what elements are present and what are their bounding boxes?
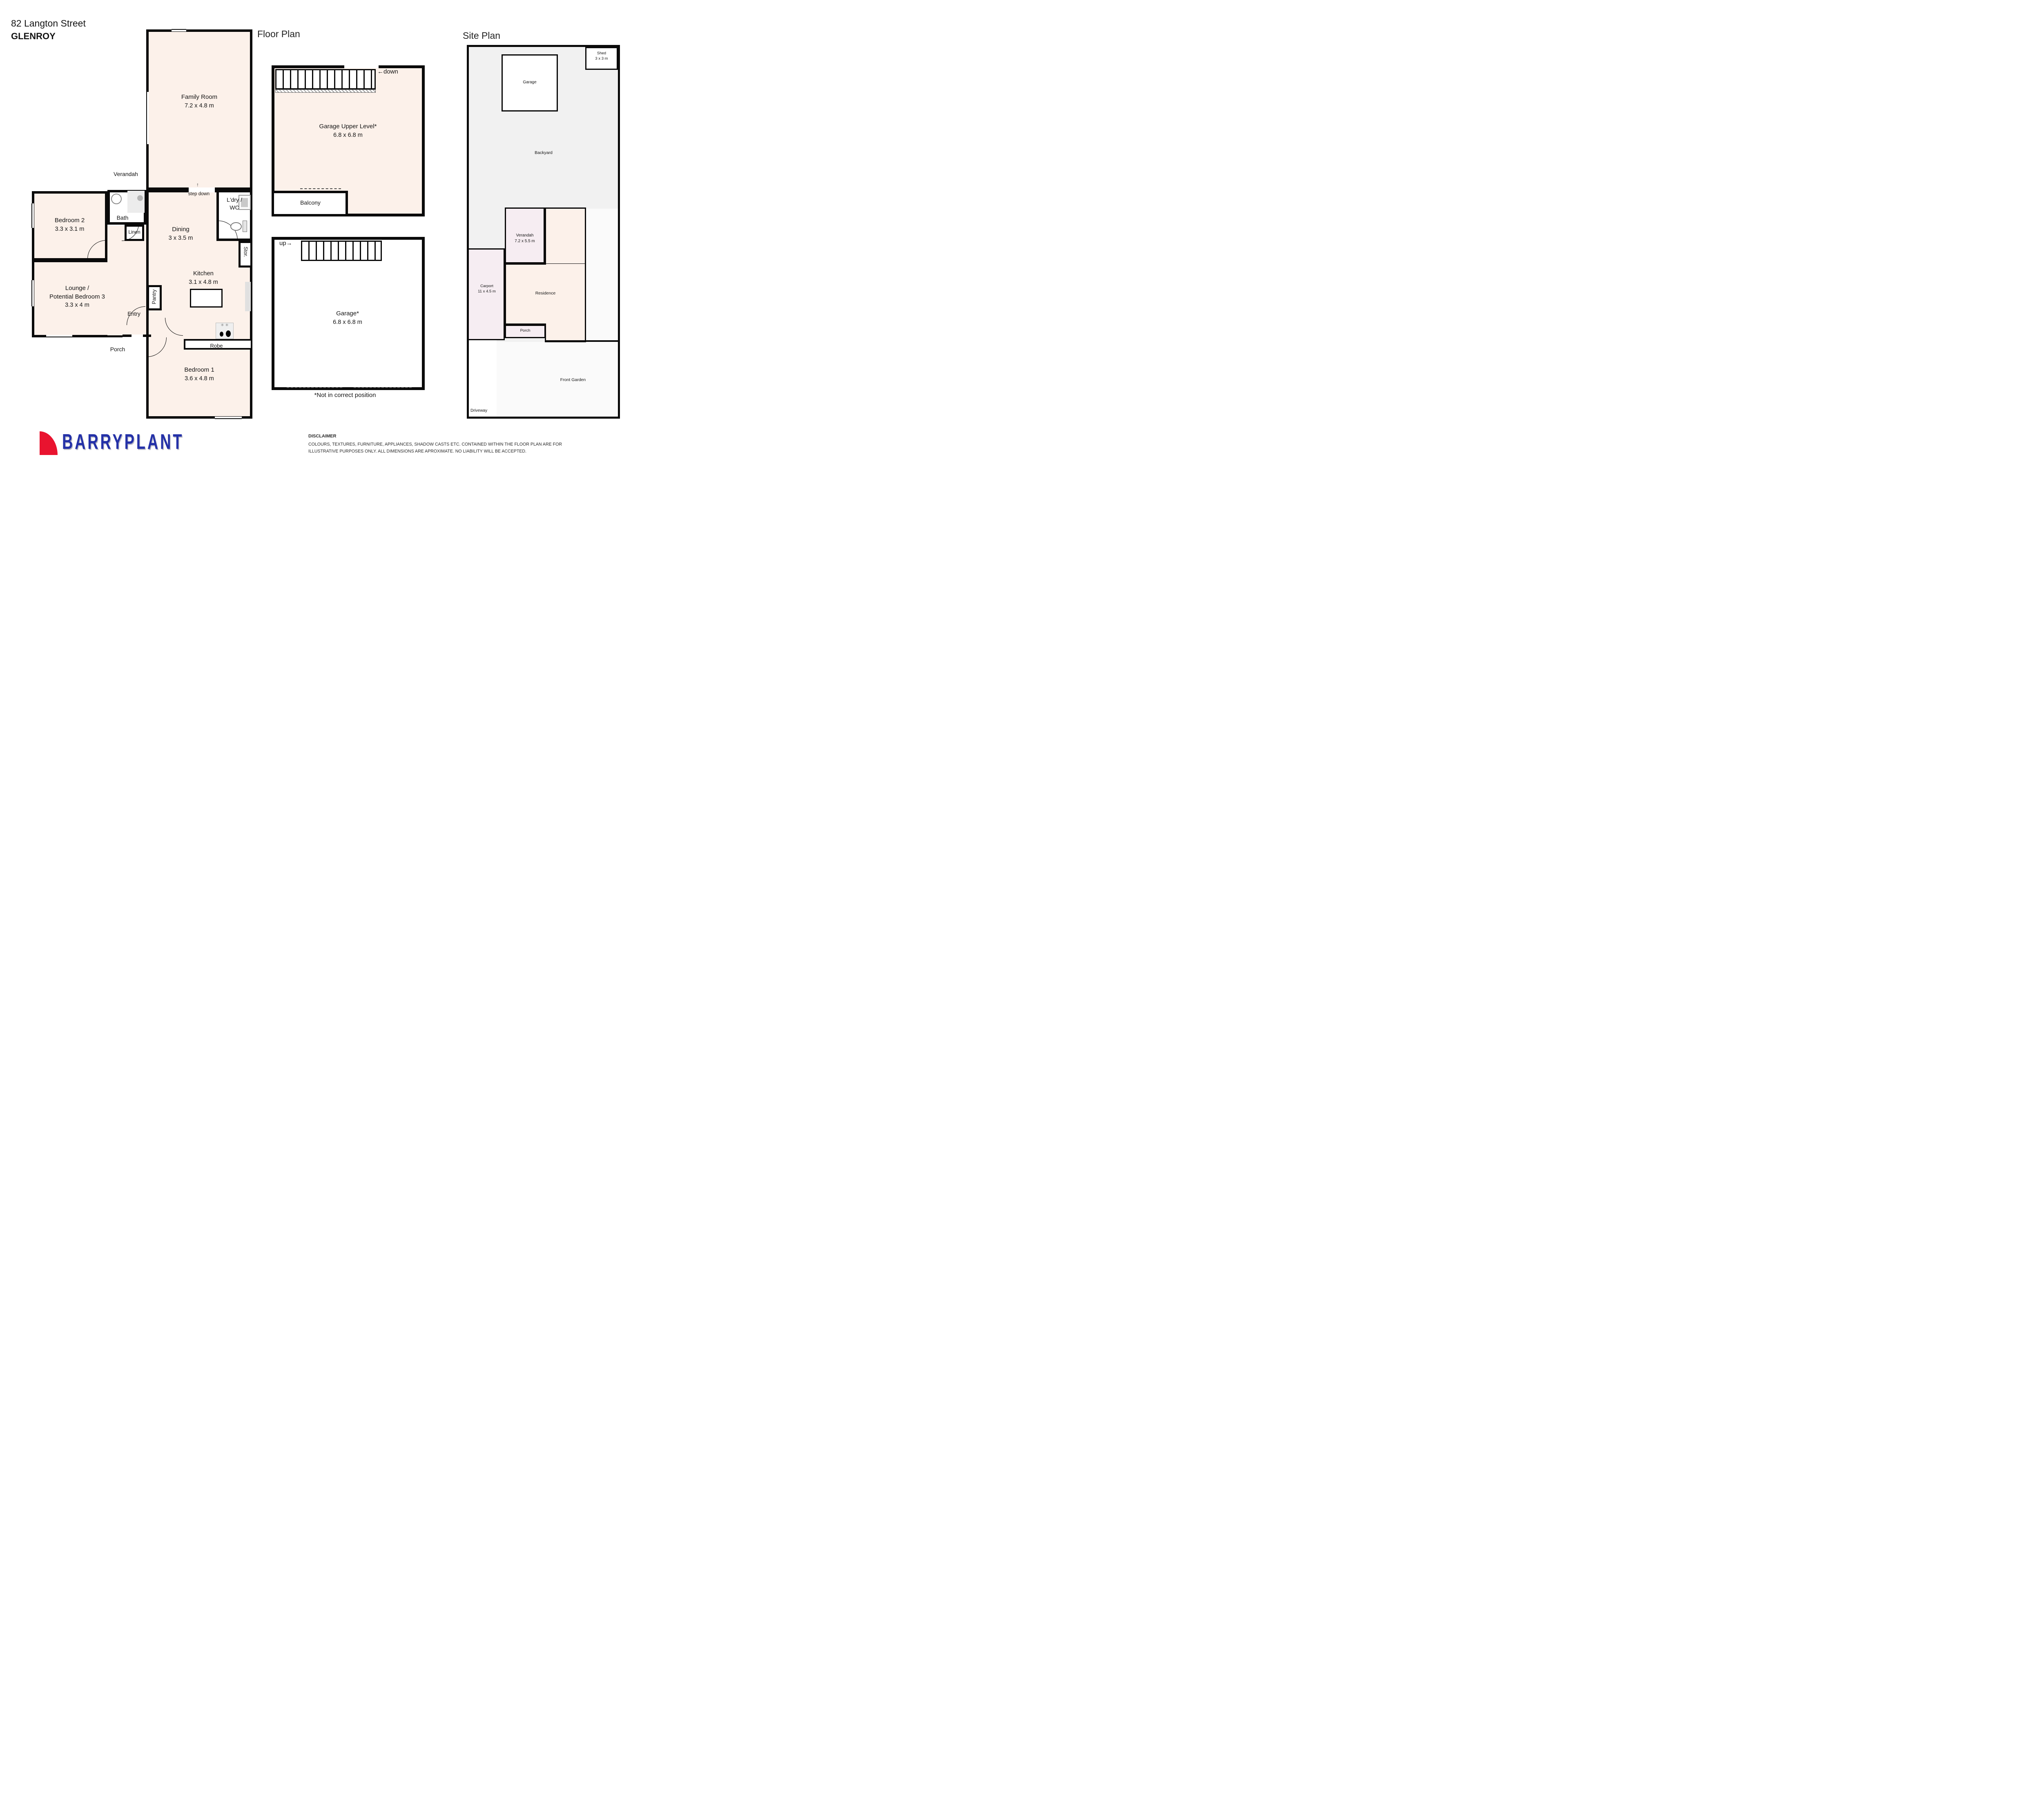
garage-upper-label: Garage Upper Level* 6.8 x 6.8 m (303, 123, 393, 139)
stairs-down-label: ←down (377, 68, 408, 76)
family-room-label: Family Room 7.2 x 4.8 m (154, 93, 244, 110)
site-shed-label: Shed 3 x 3 m (585, 51, 618, 62)
site-plan: Shed 3 x 3 m Garage Backyard Verandah 7.… (467, 45, 620, 419)
step-down-label: step down (183, 191, 215, 198)
stairs-down (275, 69, 376, 89)
site-side-yard (586, 209, 618, 341)
window (30, 203, 34, 228)
disclaimer-title: DISCLAIMER (308, 434, 336, 439)
bedroom-1-label: Bedroom 1 3.6 x 4.8 m (163, 366, 236, 383)
site-carport-label: Carport 11 x 4.5 m (469, 284, 505, 294)
bath-label: Bath (110, 214, 135, 222)
porch-label: Porch (105, 346, 130, 353)
garage-upper-wall-opening (344, 63, 379, 68)
site-garage-label: Garage (502, 80, 558, 85)
pantry-label: Pantry (151, 286, 158, 308)
shower-drain-icon (137, 195, 143, 201)
bedroom-2-label: Bedroom 2 3.3 x 3.1 m (38, 216, 101, 233)
site-driveway-label: Driveway (470, 408, 496, 414)
balcony-label: Balcony (286, 199, 335, 207)
barry-plant-logo-text: BARRYPLANT (62, 430, 184, 454)
robe-label: Robe (182, 342, 251, 350)
floorplan-document: 82 Langton Street GLENROY Floor Plan Sit… (0, 0, 631, 468)
site-verandah-label: Verandah 7.2 x 5.5 m (505, 233, 545, 244)
site-porch-label: Porch (505, 328, 546, 334)
window (46, 335, 72, 339)
window (172, 27, 186, 31)
entry-label: Entry (123, 310, 145, 318)
address-line2: GLENROY (11, 31, 56, 42)
lounge-label: Lounge / Potential Bedroom 3 3.3 x 4 m (34, 284, 120, 309)
toilet-tank-icon (243, 221, 247, 232)
garage-door-dashed (354, 387, 412, 388)
laundry-wc-label: L'dry / WC (217, 196, 252, 212)
balcony-dashed-line (300, 188, 341, 189)
stove-burner-icon (226, 330, 231, 337)
stove-burner-icon (220, 332, 223, 337)
kitchen-bench-icon (245, 282, 251, 311)
stairs-up (301, 241, 382, 261)
disclaimer-body: COLOURS, TEXTURES, FURNITURE, APPLIANCES… (308, 441, 578, 455)
stairs-up-label: up→ (279, 239, 301, 248)
stairs-hatch (275, 89, 376, 93)
site-backyard-label: Backyard (521, 150, 566, 156)
step-arrow: ↑ (194, 181, 201, 188)
toilet-icon (230, 222, 242, 231)
site-front-wall (545, 340, 619, 342)
residence-join-patch (546, 264, 585, 341)
site-plan-title: Site Plan (463, 30, 500, 41)
site-front-garden-label: Front Garden (548, 377, 597, 383)
floor-plan-title: Floor Plan (257, 29, 300, 40)
address-line1: 82 Langton Street (11, 18, 86, 29)
window (215, 417, 242, 421)
entry-door-opening (132, 335, 143, 337)
kitchen-island (190, 289, 223, 308)
kitchen-label: Kitchen 3.1 x 4.8 m (171, 270, 236, 286)
position-note: *Not in correct position (282, 391, 408, 400)
stove-icon: ✳ ✳ (216, 323, 234, 339)
garage-label: Garage* 6.8 x 6.8 m (309, 310, 386, 326)
garage-door-dashed (287, 387, 342, 388)
sink-icon (111, 194, 122, 204)
linen-label: Linen (125, 229, 143, 236)
barry-plant-logo-icon (40, 431, 58, 455)
window (145, 92, 149, 144)
storage-label: Stor. (242, 243, 249, 261)
dining-label: Dining 3 x 3.5 m (153, 225, 208, 242)
shower-icon (127, 191, 145, 213)
site-residence-label: Residence (505, 290, 586, 296)
verandah-label: Verandah (109, 170, 142, 178)
window (30, 280, 34, 306)
site-driveway (469, 338, 497, 417)
